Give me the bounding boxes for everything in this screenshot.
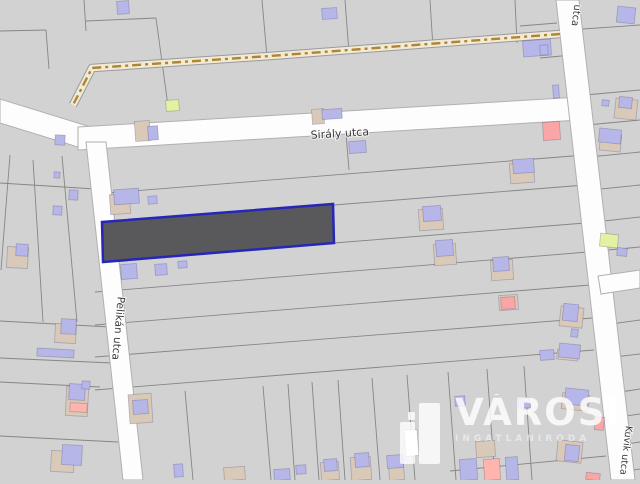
building xyxy=(455,396,466,407)
building xyxy=(422,205,441,221)
building xyxy=(564,444,580,461)
building xyxy=(571,329,579,338)
parcel-line xyxy=(372,378,380,480)
building xyxy=(69,190,79,200)
building xyxy=(513,158,535,173)
map-svg[interactable]: Sirály utca Pelikán utca Kuvik utca utca xyxy=(0,0,640,480)
building xyxy=(324,459,338,472)
parcel-line xyxy=(334,223,585,243)
track-dashed-path xyxy=(73,34,560,105)
building xyxy=(155,264,168,276)
building xyxy=(148,126,159,141)
parcel-line xyxy=(587,120,640,125)
building xyxy=(558,343,580,359)
building xyxy=(599,233,618,248)
building xyxy=(174,464,184,478)
parcel-line xyxy=(407,375,415,480)
parcel-line xyxy=(520,23,557,26)
parcel-line xyxy=(33,160,43,322)
building xyxy=(459,458,477,480)
building xyxy=(618,96,632,108)
parcel-line xyxy=(585,90,640,95)
building xyxy=(598,128,621,144)
parcel-line xyxy=(288,384,295,480)
building xyxy=(355,453,370,468)
parcel-line xyxy=(46,30,49,69)
parcel-line xyxy=(95,350,594,390)
parcel-line xyxy=(345,0,349,53)
building xyxy=(586,472,601,480)
building xyxy=(54,172,60,178)
building xyxy=(166,100,180,112)
building xyxy=(505,457,519,480)
building xyxy=(61,319,77,335)
building xyxy=(404,430,419,457)
building xyxy=(322,108,343,119)
building xyxy=(224,466,246,480)
building xyxy=(133,399,149,414)
building xyxy=(616,6,636,24)
building xyxy=(387,454,404,468)
street-siraly xyxy=(78,97,580,150)
building xyxy=(296,465,307,475)
building xyxy=(540,350,555,361)
parcel-line xyxy=(583,25,640,29)
building xyxy=(37,348,74,358)
building xyxy=(518,398,531,409)
building xyxy=(501,297,516,310)
building xyxy=(564,388,589,406)
street-label-siraly: Sirály utca xyxy=(310,125,369,141)
building xyxy=(562,303,579,321)
building xyxy=(435,239,453,256)
parcel-line xyxy=(262,0,267,57)
building xyxy=(53,206,62,215)
building xyxy=(617,247,628,256)
building xyxy=(82,381,90,389)
building xyxy=(542,121,560,140)
building xyxy=(475,440,495,457)
building xyxy=(120,263,137,279)
parcel-line xyxy=(62,156,77,322)
building xyxy=(594,417,604,431)
parcel-line xyxy=(0,436,118,442)
parcel-line xyxy=(84,0,86,31)
building xyxy=(55,135,66,146)
building xyxy=(349,140,367,153)
parcel-line xyxy=(95,252,588,292)
track-bed xyxy=(73,34,560,105)
building xyxy=(70,403,87,413)
building xyxy=(114,188,140,205)
parcel-line xyxy=(0,183,95,189)
building xyxy=(148,196,158,205)
parcel-line xyxy=(86,18,156,21)
building xyxy=(553,85,560,98)
track-casing xyxy=(73,34,560,105)
parcel-line xyxy=(448,372,456,480)
building xyxy=(493,256,510,271)
map-canvas[interactable]: Sirály utca Pelikán utca Kuvik utca utca… xyxy=(0,0,640,480)
building xyxy=(117,1,130,15)
building xyxy=(274,468,291,480)
parcel-line xyxy=(95,318,592,357)
building xyxy=(483,458,500,480)
parcel-line xyxy=(334,185,585,205)
building xyxy=(602,100,610,107)
parcel-line xyxy=(0,358,112,363)
parcel-line xyxy=(263,386,271,480)
parcel-line xyxy=(0,30,46,31)
parcel-line xyxy=(312,382,319,480)
highlighted-parcel[interactable] xyxy=(102,204,334,262)
parcel-line xyxy=(185,391,193,480)
building xyxy=(61,444,82,465)
building xyxy=(178,261,187,269)
building xyxy=(16,244,29,257)
building xyxy=(540,45,549,56)
parcel-line xyxy=(338,380,345,480)
building xyxy=(322,7,338,19)
track-dashes xyxy=(73,34,560,105)
